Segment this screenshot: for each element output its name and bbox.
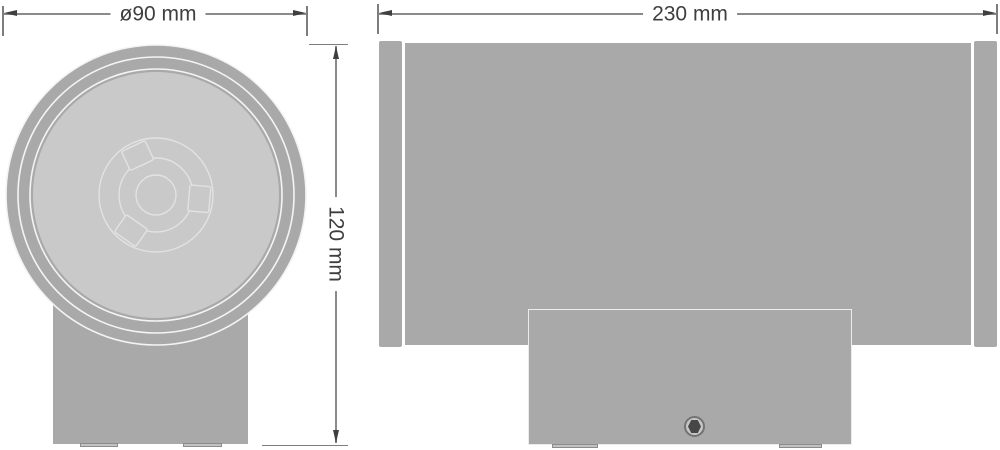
dimension-drawing: ø90 mm 120 mm 230 mm [0,0,1000,450]
dim-width-arrow-right [983,10,996,16]
hex-screw-icon [684,416,705,437]
hex-screw-head [688,420,701,433]
side-foot-right [779,444,822,448]
dim-diameter-ext-right [306,6,308,36]
module-tab-right [188,185,211,213]
dim-width-arrow-left [379,10,392,16]
dim-width-ext-left [377,4,379,34]
diffuser-face [33,72,279,318]
dim-height-arrow-bottom [333,430,339,443]
side-cylinder-body [405,43,971,345]
dim-diameter-label: ø90 mm [110,2,205,27]
dim-height-arrow-top [333,46,339,59]
dim-height-ext-top [309,44,348,46]
side-end-cap-left [379,41,402,347]
dim-diameter-arrow-right [293,10,306,16]
front-foot-left [80,443,118,447]
side-end-cap-right [974,41,997,347]
side-foot-left [552,444,598,448]
dim-width-ext-right [996,4,998,34]
front-round-head [0,0,365,450]
dim-width-label: 230 mm [643,2,737,27]
front-foot-right [183,443,222,447]
dim-height-ext-bottom [262,445,348,447]
dim-height-label: 120 mm [324,197,349,291]
dim-diameter-arrow-left [4,10,17,16]
